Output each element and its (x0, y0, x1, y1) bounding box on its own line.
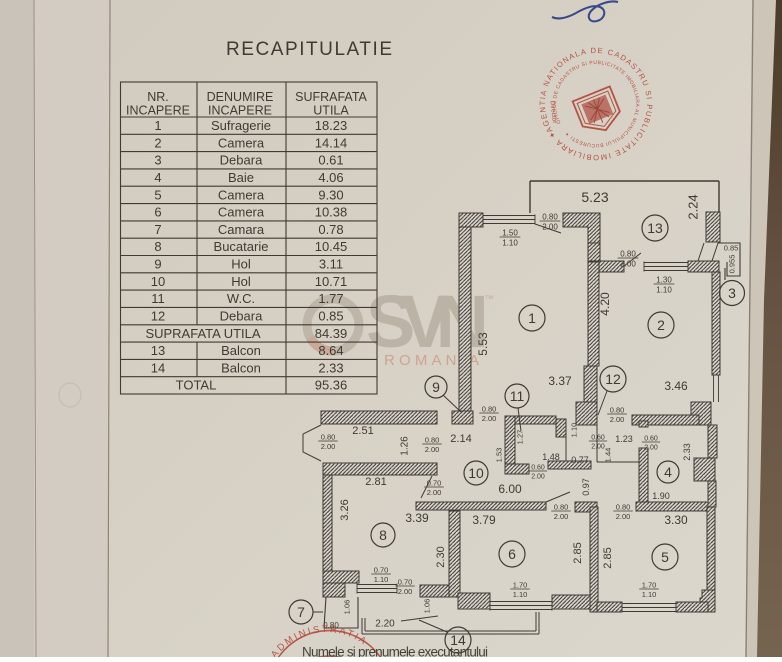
svg-text:Camera: Camera (218, 205, 265, 220)
svg-text:2.85: 2.85 (602, 547, 614, 568)
svg-text:RECAPITULATIE: RECAPITULATIE (226, 39, 395, 60)
svg-text:9.30: 9.30 (318, 187, 343, 202)
svg-text:2: 2 (657, 317, 665, 333)
svg-text:Camara: Camara (218, 222, 265, 237)
svg-text:0.70: 0.70 (374, 566, 389, 575)
svg-text:2.00: 2.00 (427, 488, 442, 497)
svg-text:7: 7 (297, 604, 305, 620)
svg-text:0.60: 0.60 (591, 435, 605, 442)
svg-text:11: 11 (151, 291, 165, 306)
svg-text:1.77: 1.77 (318, 291, 343, 306)
svg-text:14: 14 (151, 360, 165, 375)
svg-text:2.00: 2.00 (482, 414, 497, 423)
svg-text:NR.: NR. (147, 90, 169, 104)
svg-text:5.23: 5.23 (581, 189, 608, 205)
svg-text:2.00: 2.00 (554, 512, 569, 521)
svg-text:2.00: 2.00 (321, 442, 336, 451)
svg-text:2.00: 2.00 (610, 415, 625, 424)
svg-text:2: 2 (154, 135, 161, 150)
svg-text:0.70: 0.70 (427, 479, 442, 488)
svg-text:14.14: 14.14 (315, 135, 348, 150)
svg-text:Debara: Debara (220, 153, 263, 168)
svg-text:1.44: 1.44 (604, 448, 613, 463)
svg-text:Balcon: Balcon (221, 343, 261, 358)
svg-text:1.26: 1.26 (400, 436, 411, 456)
svg-text:2.14: 2.14 (450, 433, 471, 445)
svg-text:1.06: 1.06 (423, 599, 432, 614)
svg-text:0.80: 0.80 (425, 436, 440, 445)
svg-text:2.33: 2.33 (682, 443, 692, 461)
svg-text:Numele si prenumele executantu: Numele si prenumele executantului (302, 645, 488, 658)
svg-text:0.80: 0.80 (482, 405, 497, 414)
svg-text:9: 9 (432, 379, 440, 395)
svg-text:8.64: 8.64 (318, 343, 343, 358)
svg-text:0.80: 0.80 (542, 213, 558, 222)
svg-text:INCAPERE: INCAPERE (208, 104, 272, 118)
svg-text:5: 5 (154, 187, 161, 202)
svg-text:4: 4 (154, 170, 161, 185)
svg-text:2.00: 2.00 (620, 260, 636, 269)
svg-text:2.20: 2.20 (375, 619, 395, 630)
svg-text:1: 1 (154, 118, 161, 133)
svg-text:Camera: Camera (218, 187, 265, 202)
svg-text:1.30: 1.30 (656, 276, 672, 285)
svg-text:1.10: 1.10 (513, 590, 528, 599)
svg-text:Debara: Debara (220, 309, 263, 324)
svg-text:1.10: 1.10 (570, 423, 579, 438)
svg-text:4.06: 4.06 (318, 170, 343, 185)
svg-text:0.80: 0.80 (554, 503, 569, 512)
svg-text:8: 8 (154, 239, 161, 254)
svg-text:1.10: 1.10 (656, 286, 672, 295)
svg-text:0.61: 0.61 (318, 153, 343, 168)
svg-text:Camera: Camera (218, 135, 265, 150)
svg-text:Balcon: Balcon (221, 360, 261, 375)
svg-text:3.26: 3.26 (339, 499, 351, 520)
svg-text:13: 13 (647, 220, 663, 236)
svg-text:2.24: 2.24 (686, 194, 701, 219)
svg-text:1.48: 1.48 (542, 452, 560, 462)
svg-text:13: 13 (151, 343, 165, 358)
svg-text:10.45: 10.45 (315, 239, 348, 254)
svg-text:5.53: 5.53 (476, 332, 490, 356)
svg-text:Baie: Baie (228, 170, 254, 185)
svg-text:3.79: 3.79 (472, 513, 496, 527)
svg-text:12: 12 (605, 371, 621, 387)
svg-text:3: 3 (154, 153, 161, 168)
svg-text:10.38: 10.38 (315, 205, 348, 220)
svg-text:2.00: 2.00 (644, 445, 658, 452)
svg-text:Hol: Hol (231, 257, 251, 272)
svg-text:5: 5 (661, 549, 669, 565)
svg-text:Hol: Hol (231, 274, 251, 289)
svg-text:0.70: 0.70 (398, 578, 413, 587)
svg-text:2.00: 2.00 (616, 512, 631, 521)
svg-text:7: 7 (154, 222, 161, 237)
svg-text:2.00: 2.00 (425, 445, 440, 454)
svg-text:0.955: 0.955 (728, 255, 737, 274)
svg-text:12: 12 (151, 309, 165, 324)
svg-text:0.85: 0.85 (318, 309, 343, 324)
svg-text:84.39: 84.39 (315, 326, 348, 341)
svg-text:1.53: 1.53 (495, 448, 504, 463)
svg-text:DENUMIRE: DENUMIRE (207, 90, 274, 104)
svg-text:6: 6 (508, 546, 516, 562)
svg-text:10.71: 10.71 (315, 274, 348, 289)
svg-text:6: 6 (154, 205, 161, 220)
svg-text:0.80: 0.80 (610, 406, 625, 415)
svg-text:10: 10 (151, 274, 165, 289)
svg-text:2.51: 2.51 (352, 425, 373, 437)
svg-text:18.23: 18.23 (315, 118, 348, 133)
svg-text:8: 8 (379, 527, 387, 543)
svg-text:2.85: 2.85 (572, 542, 584, 563)
svg-text:1.10: 1.10 (502, 239, 518, 248)
svg-text:0.80: 0.80 (620, 250, 636, 259)
svg-text:1.70: 1.70 (513, 581, 528, 590)
svg-text:2.81: 2.81 (365, 476, 386, 488)
svg-text:0.80: 0.80 (616, 503, 631, 512)
svg-text:0.85: 0.85 (724, 244, 739, 253)
svg-text:3.46: 3.46 (664, 379, 688, 393)
svg-text:™: ™ (484, 294, 494, 305)
svg-text:W.C.: W.C. (227, 291, 255, 306)
svg-text:UTILA: UTILA (313, 104, 349, 118)
svg-text:1.50: 1.50 (502, 229, 518, 238)
svg-text:6.00: 6.00 (498, 482, 522, 496)
svg-text:2.33: 2.33 (318, 360, 343, 375)
svg-text:1.90: 1.90 (652, 491, 670, 501)
svg-text:SUPRAFATA UTILA: SUPRAFATA UTILA (145, 326, 260, 341)
svg-text:SUFRAFATA: SUFRAFATA (295, 90, 367, 104)
svg-text:2.00: 2.00 (542, 223, 558, 232)
svg-text:3: 3 (728, 285, 736, 301)
svg-text:0.77: 0.77 (571, 455, 589, 465)
svg-text:11: 11 (510, 388, 525, 404)
svg-text:0.78: 0.78 (318, 222, 343, 237)
svg-text:2.30: 2.30 (435, 546, 447, 567)
svg-text:3.30: 3.30 (664, 513, 688, 527)
svg-text:2.00: 2.00 (398, 587, 413, 596)
svg-text:3.11: 3.11 (319, 257, 343, 272)
svg-text:0.60: 0.60 (531, 465, 545, 472)
svg-text:INCAPERE: INCAPERE (126, 104, 190, 118)
svg-text:3.37: 3.37 (548, 374, 572, 388)
svg-text:9: 9 (154, 257, 161, 272)
svg-text:1.10: 1.10 (642, 590, 657, 599)
svg-text:Sufragerie: Sufragerie (211, 118, 271, 133)
svg-text:1.70: 1.70 (642, 581, 657, 590)
svg-text:10: 10 (468, 465, 484, 481)
svg-text:4: 4 (664, 464, 672, 480)
svg-text:1.23: 1.23 (615, 434, 633, 444)
svg-text:4.20: 4.20 (598, 292, 612, 316)
svg-text:1.06: 1.06 (343, 600, 352, 615)
svg-text:1.10: 1.10 (374, 575, 389, 584)
svg-text:0.80: 0.80 (321, 433, 336, 442)
svg-text:0.97: 0.97 (581, 478, 591, 496)
svg-text:0.60: 0.60 (644, 436, 658, 443)
svg-text:TOTAL: TOTAL (176, 378, 217, 393)
svg-text:Bucatarie: Bucatarie (214, 239, 269, 254)
svg-text:1: 1 (528, 310, 536, 326)
svg-text:2.00: 2.00 (531, 474, 545, 481)
svg-text:1.27: 1.27 (516, 430, 525, 445)
svg-text:95.36: 95.36 (315, 378, 348, 393)
svg-text:3.39: 3.39 (405, 511, 429, 525)
